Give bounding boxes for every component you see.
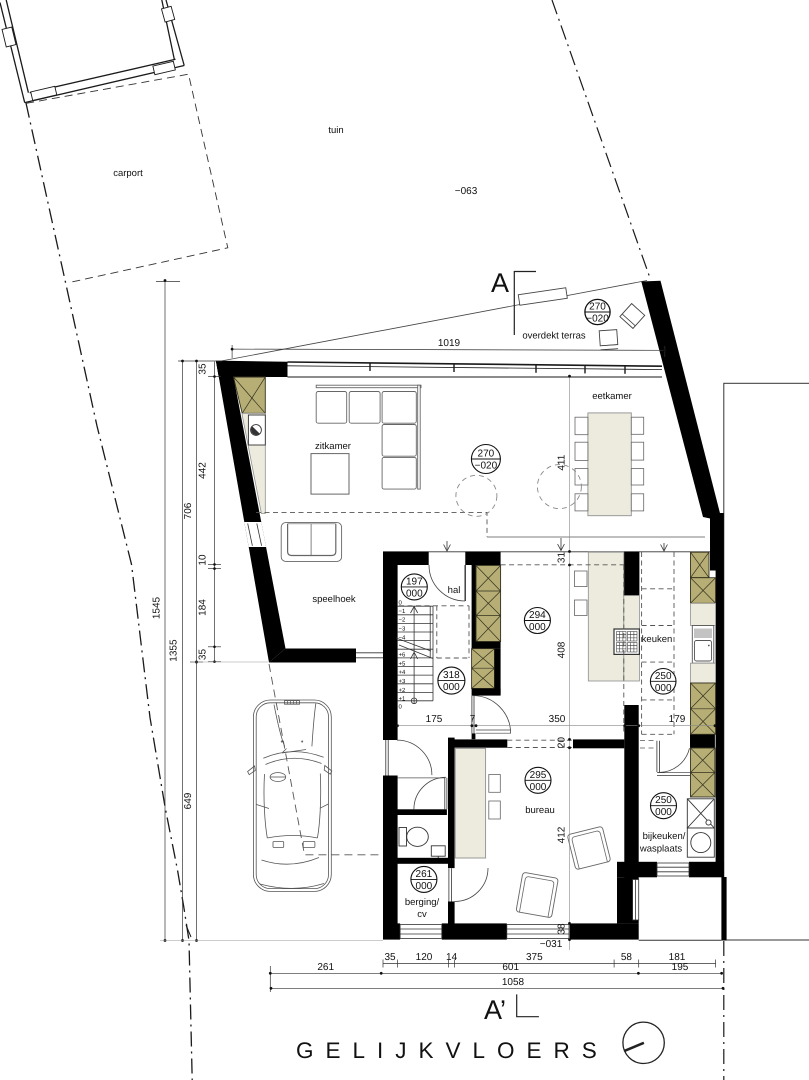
svg-text:keuken: keuken — [642, 634, 673, 645]
svg-text:+6: +6 — [399, 652, 407, 659]
svg-text:295: 295 — [530, 770, 547, 781]
svg-text:eetkamer: eetkamer — [592, 391, 632, 402]
svg-text:1058: 1058 — [502, 977, 525, 988]
svg-text:318: 318 — [443, 670, 460, 681]
svg-text:A: A — [491, 268, 509, 298]
svg-text:−020: −020 — [586, 314, 609, 325]
svg-text:+1: +1 — [399, 696, 407, 703]
svg-text:270: 270 — [478, 449, 495, 460]
svg-text:−4: −4 — [399, 634, 407, 641]
svg-text:tuin: tuin — [328, 125, 343, 136]
svg-text:GELIJKVLOERS: GELIJKVLOERS — [296, 1038, 609, 1063]
svg-text:35: 35 — [198, 649, 209, 661]
svg-text:bijkeuken/: bijkeuken/ — [643, 831, 686, 842]
svg-text:−2: −2 — [399, 617, 407, 624]
svg-text:350: 350 — [549, 714, 566, 725]
svg-text:270: 270 — [589, 302, 606, 313]
svg-text:berging/: berging/ — [405, 897, 440, 908]
svg-text:412: 412 — [557, 826, 568, 843]
svg-text:−1: −1 — [399, 608, 407, 615]
svg-text:7: 7 — [470, 714, 476, 725]
svg-text:bureau: bureau — [525, 805, 555, 816]
svg-text:179: 179 — [669, 714, 686, 725]
svg-text:706: 706 — [183, 502, 194, 519]
svg-text:649: 649 — [183, 792, 194, 809]
svg-text:−3: −3 — [399, 626, 407, 633]
svg-text:601: 601 — [502, 962, 519, 973]
svg-text:0: 0 — [399, 704, 403, 711]
svg-text:1019: 1019 — [438, 338, 461, 349]
svg-text:+4: +4 — [399, 669, 407, 676]
svg-text:−031: −031 — [540, 939, 563, 950]
svg-text:000: 000 — [406, 588, 423, 599]
svg-text:wasplaats: wasplaats — [639, 844, 682, 855]
svg-text:195: 195 — [672, 962, 689, 973]
svg-text:000: 000 — [416, 881, 433, 892]
svg-text:31: 31 — [557, 552, 568, 564]
svg-text:10: 10 — [198, 554, 209, 566]
svg-text:hal: hal — [448, 585, 461, 596]
svg-text:442: 442 — [198, 462, 209, 479]
svg-text:411: 411 — [557, 454, 568, 470]
svg-text:cv: cv — [417, 909, 427, 920]
svg-text:+2: +2 — [399, 687, 407, 694]
svg-text:408: 408 — [557, 641, 568, 658]
svg-text:294: 294 — [529, 610, 546, 621]
svg-text:1355: 1355 — [169, 639, 180, 662]
svg-text:+3: +3 — [399, 678, 407, 685]
svg-text:38: 38 — [557, 923, 568, 935]
svg-text:375: 375 — [526, 952, 543, 963]
svg-text:000: 000 — [529, 622, 546, 633]
svg-text:58: 58 — [621, 952, 633, 963]
svg-text:250: 250 — [655, 671, 672, 682]
svg-text:−063: −063 — [455, 186, 478, 197]
svg-text:261: 261 — [317, 962, 334, 973]
svg-text:000: 000 — [655, 683, 672, 694]
svg-text:35: 35 — [198, 363, 209, 375]
svg-text:−020: −020 — [475, 461, 498, 472]
svg-text:A’: A’ — [484, 995, 506, 1025]
svg-text:+5: +5 — [399, 660, 407, 667]
svg-text:261: 261 — [416, 869, 433, 880]
svg-text:1545: 1545 — [152, 596, 163, 619]
svg-text:000: 000 — [655, 807, 672, 818]
svg-text:carport: carport — [113, 168, 143, 179]
svg-text:14: 14 — [446, 952, 458, 963]
svg-text:35: 35 — [384, 952, 396, 963]
svg-text:175: 175 — [426, 714, 443, 725]
svg-text:250: 250 — [655, 795, 672, 806]
svg-text:197: 197 — [406, 576, 423, 587]
svg-text:120: 120 — [416, 952, 433, 963]
svg-text:000: 000 — [530, 782, 547, 793]
svg-text:20: 20 — [557, 737, 568, 749]
svg-text:zitkamer: zitkamer — [315, 441, 351, 452]
svg-text:000: 000 — [443, 682, 460, 693]
svg-text:184: 184 — [198, 599, 209, 616]
svg-text:speelhoek: speelhoek — [312, 594, 356, 605]
svg-text:overdekt terras: overdekt terras — [522, 331, 586, 342]
